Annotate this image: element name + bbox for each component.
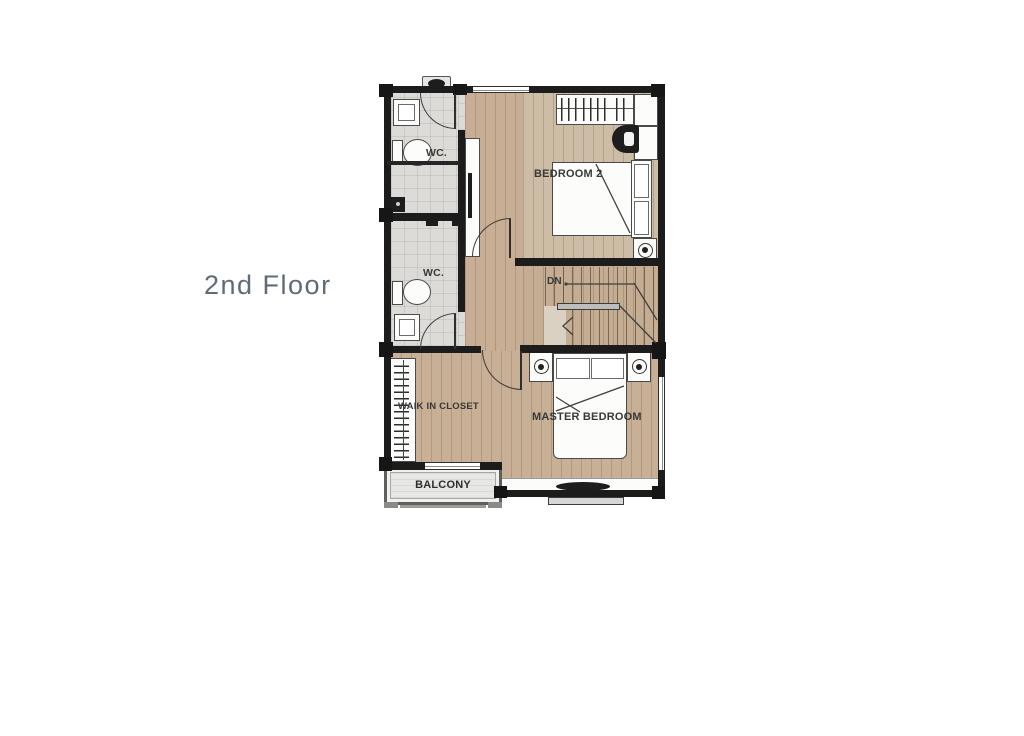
room-label-walk-in-closet: WAIK IN CLOSET [398, 401, 479, 412]
hanger-marks [616, 98, 629, 121]
pillow [634, 164, 649, 198]
room-label-balcony: BALCONY [384, 479, 502, 491]
hanger-marks [561, 98, 577, 121]
window-frame [548, 497, 624, 505]
shower-drain-dot [396, 202, 400, 206]
door-leaf [509, 219, 511, 258]
room-label-wc-bottom: WC. [423, 267, 444, 279]
wall-joint [651, 84, 665, 97]
toilet-bowl-icon [403, 279, 431, 305]
pillow [556, 358, 590, 379]
door-leaf [454, 94, 456, 129]
balcony-molding [400, 505, 486, 508]
hanger-marks [583, 98, 611, 121]
balcony-molding [384, 502, 398, 508]
room-label-stairs-dn: DN [547, 276, 562, 287]
balcony-molding [488, 502, 502, 508]
wall-joint [379, 457, 392, 471]
wall-joint [652, 342, 666, 359]
room-label-wc-top: WC. [426, 147, 447, 159]
room-label-bedroom2: BEDROOM 2 [534, 168, 602, 180]
wall-joint [379, 208, 393, 222]
stair-landing [544, 306, 566, 345]
right-window [658, 377, 665, 470]
left-wall [384, 86, 391, 470]
door-leaf [454, 314, 456, 349]
toilet-tank-icon [392, 281, 403, 305]
room-label-master-bedroom: MASTER BEDROOM [532, 411, 642, 423]
wall-joint [652, 486, 665, 499]
nightstand [627, 351, 651, 382]
shower-partition [387, 161, 460, 165]
stair-handrail [557, 303, 620, 310]
bottom-wall [500, 490, 665, 497]
sink-basin-icon [398, 104, 415, 121]
pillow [634, 201, 649, 235]
pillow [591, 358, 624, 379]
basin-bowl [624, 132, 634, 146]
stairwell-bottom-wall [520, 345, 658, 353]
door-leaf [520, 351, 522, 390]
wc-divider-wall [384, 213, 465, 221]
lamp-dot [636, 364, 642, 370]
bedroom2-bottom-wall [515, 258, 658, 266]
counter-cabinet [634, 94, 658, 126]
wall-joint [379, 84, 393, 97]
floor-plan-page: 2nd Floor [0, 0, 1024, 736]
floor-title: 2nd Floor [204, 270, 344, 301]
balcony-sliding-door [425, 462, 480, 470]
sink-basin-icon [399, 319, 415, 336]
top-window [473, 86, 529, 93]
lamp-dot [642, 247, 648, 253]
nightstand [529, 351, 553, 382]
cabinet-handle [468, 173, 472, 218]
lamp-dot [538, 364, 544, 370]
wc-door-opening [458, 312, 465, 349]
wall-joint [379, 342, 393, 357]
wc-door-opening [458, 94, 465, 130]
